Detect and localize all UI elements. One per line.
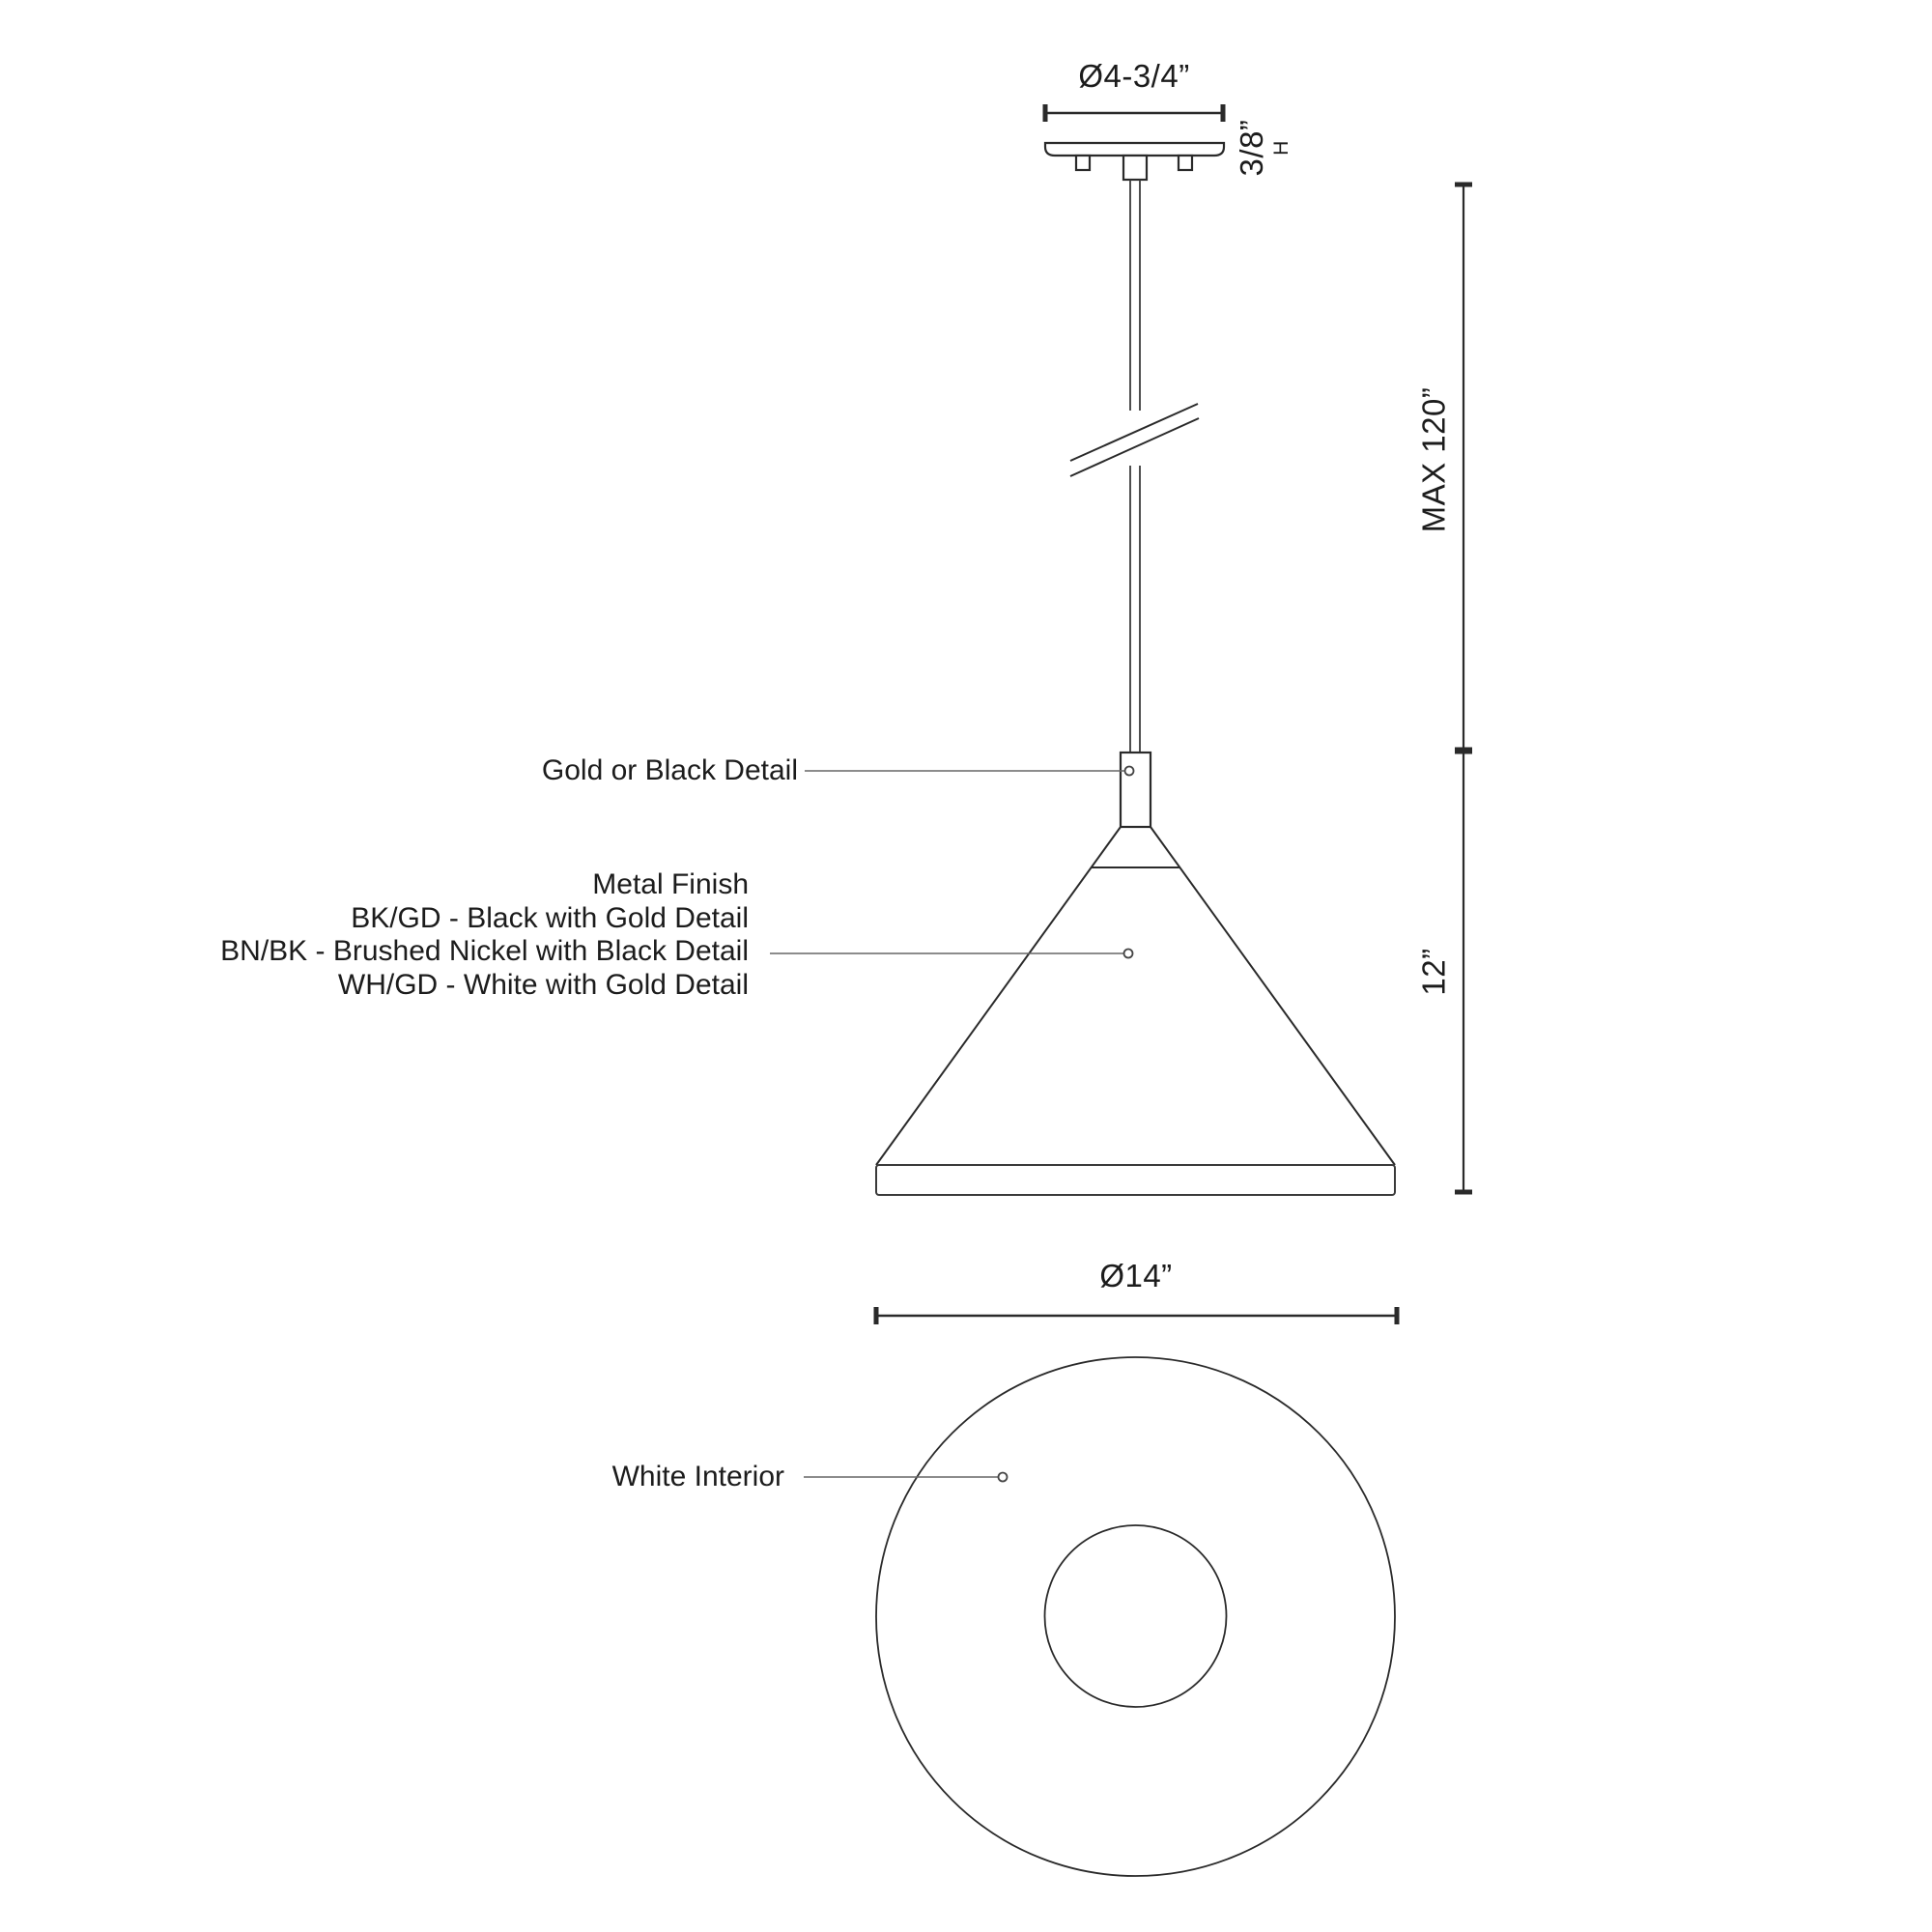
canopy-height-suffix: H bbox=[1271, 140, 1292, 156]
canopy-tab-left bbox=[1076, 156, 1090, 170]
metal-finish-note: Metal Finish BK/GD - Black with Gold Det… bbox=[220, 868, 749, 1002]
connector-body bbox=[1121, 753, 1151, 827]
max-drop-value: MAX 120” bbox=[1418, 387, 1450, 533]
canopy-drawing bbox=[1045, 143, 1224, 180]
cone-right-slope bbox=[1151, 827, 1395, 1165]
canopy-height-value: 3/8” bbox=[1236, 120, 1267, 177]
cone-left-slope bbox=[876, 827, 1121, 1165]
canopy-height-label: 3/8” H bbox=[1236, 120, 1292, 177]
break-line-upper bbox=[1070, 404, 1198, 461]
finish-note-line-3: BN/BK - Brushed Nickel with Black Detail bbox=[220, 935, 749, 969]
canopy-stem bbox=[1123, 156, 1147, 180]
max-drop-label: MAX 120” bbox=[1418, 387, 1450, 533]
suspension-rod bbox=[1130, 180, 1140, 753]
leader-dot-finish bbox=[1124, 950, 1133, 958]
shade-inner-circle bbox=[1045, 1525, 1227, 1707]
finish-note-line-1: Metal Finish bbox=[220, 868, 749, 902]
finish-note-line-2: BK/GD - Black with Gold Detail bbox=[220, 902, 749, 936]
white-interior-label: White Interior bbox=[612, 1462, 784, 1492]
bottom-view bbox=[804, 1357, 1395, 1876]
canopy-plate bbox=[1045, 143, 1224, 156]
leader-dot-interior bbox=[999, 1473, 1008, 1482]
shade-diameter-dimension bbox=[876, 1307, 1397, 1324]
leader-dot-connector bbox=[1125, 767, 1134, 776]
shade-outer-circle bbox=[876, 1357, 1395, 1876]
break-line-lower bbox=[1070, 418, 1199, 476]
shade-height-label: 12” bbox=[1418, 948, 1450, 995]
finish-note-line-4: WH/GD - White with Gold Detail bbox=[220, 969, 749, 1003]
cone-shade bbox=[876, 827, 1395, 1195]
canopy-diameter-dimension bbox=[1045, 104, 1223, 122]
canopy-diameter-label: Ø4-3/4” bbox=[1078, 61, 1189, 92]
detail-connector bbox=[1121, 753, 1151, 827]
gold-or-black-detail-label: Gold or Black Detail bbox=[542, 755, 798, 786]
vertical-dimensions bbox=[1455, 185, 1472, 1192]
break-symbol bbox=[1070, 404, 1199, 476]
shade-rim bbox=[876, 1165, 1395, 1195]
shade-diameter-label: Ø14” bbox=[1099, 1261, 1172, 1292]
dimension-drawing-page: Ø4-3/4” 3/8” H Gold or Black Detail Meta… bbox=[0, 0, 1932, 1932]
canopy-tab-right bbox=[1179, 156, 1192, 170]
shade-height-value: 12” bbox=[1418, 948, 1450, 995]
